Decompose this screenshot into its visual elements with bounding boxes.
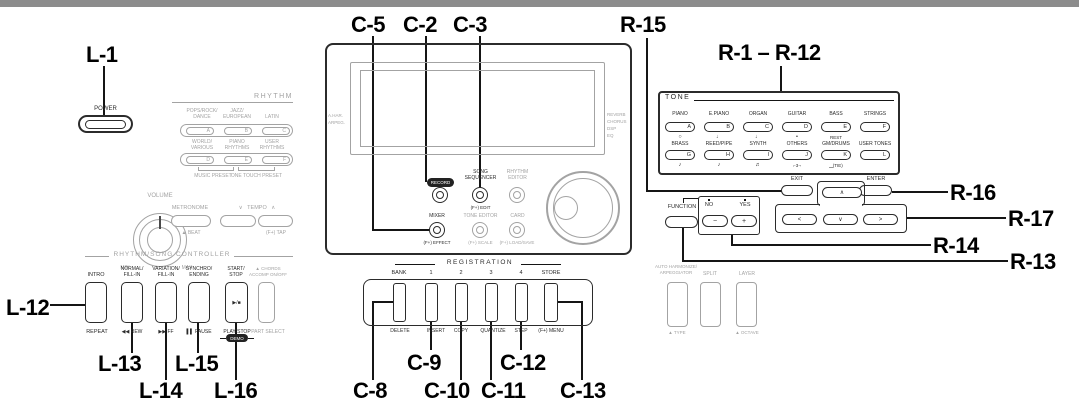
- note-tie-icon: ‿(TIE): [821, 163, 851, 169]
- reg1-button[interactable]: [425, 283, 438, 322]
- demo-label: DEMO: [230, 336, 244, 341]
- card-sub: (F+) LOAD/SAVE: [492, 240, 542, 246]
- tone-button-a[interactable]: A: [665, 122, 695, 132]
- power-button[interactable]: [78, 115, 133, 133]
- tone-key-a: A: [687, 124, 691, 130]
- organ-label: ORGAN: [739, 111, 777, 117]
- callout-l12: L-12: [6, 295, 49, 321]
- bass-label: BASS: [817, 111, 855, 117]
- delete-label: DELETE: [386, 328, 414, 334]
- note-whole-icon: ○: [670, 134, 690, 141]
- cursor-up-button[interactable]: ∧: [822, 187, 862, 198]
- normal-fill-in-button[interactable]: [121, 282, 143, 323]
- function-button[interactable]: [665, 216, 698, 228]
- brass-label: BRASS: [660, 141, 700, 147]
- insert-label: INSERT: [422, 328, 450, 334]
- music-preset-bracket-r: [233, 167, 234, 171]
- chevron-up-icon: ∧: [840, 189, 844, 196]
- rhythm-key-c: C: [282, 128, 286, 134]
- callout-r14: R-14: [933, 233, 979, 259]
- callout-c3: C-3: [453, 12, 487, 38]
- tone-key-l: L: [883, 152, 886, 158]
- volume-knob-cap: [147, 227, 173, 253]
- card-cap: [513, 226, 521, 234]
- tone-button-e[interactable]: E: [821, 122, 851, 132]
- tone-key-d: D: [804, 124, 808, 130]
- copy-label: COPY: [447, 328, 475, 334]
- mixer-sub: (F+) EFFECT: [415, 240, 459, 246]
- chevron-left-icon: <: [798, 217, 802, 223]
- guitar-label: GUITAR: [778, 111, 816, 117]
- yes-dot: [744, 199, 746, 201]
- tempo-up-button[interactable]: [258, 215, 293, 227]
- rhythm-button-f[interactable]: F: [262, 156, 290, 164]
- card-label: CARD: [495, 213, 540, 219]
- onetouch-bracket-r: [274, 167, 275, 171]
- callout-c13: C-13: [560, 378, 606, 404]
- metronome-beat-label: ▲ BEAT: [171, 230, 211, 236]
- tone-button-k[interactable]: K: [821, 150, 851, 160]
- plus-button[interactable]: +: [731, 215, 757, 227]
- tone-key-k: K: [843, 152, 847, 158]
- leader-l15: [197, 322, 199, 353]
- rhythm-button-d[interactable]: D: [186, 156, 214, 164]
- rhythm-key-e: E: [245, 157, 248, 163]
- callout-r15: R-15: [620, 12, 666, 38]
- onetouch-bracket-h: [238, 170, 275, 171]
- display-right-indicators: REVERB CHORUS DSP EQ: [607, 112, 633, 140]
- rhythm-button-b[interactable]: B: [224, 127, 252, 135]
- panel-diagram: L-1 L-12 L-13 L-14 L-15 L-16 C-5 C-2 C-3…: [0, 0, 1079, 409]
- tone-key-f: F: [883, 124, 886, 130]
- store-button[interactable]: [544, 283, 558, 322]
- bank-button[interactable]: [393, 283, 406, 322]
- tone-button-l[interactable]: L: [860, 150, 890, 160]
- octave-label: ▲ OCTAVE: [728, 330, 766, 336]
- registration-rule-right: [521, 264, 561, 265]
- user-tones-label: USER TONES: [855, 141, 895, 147]
- accomp-on-off-label: ▲ CHORDS ACCOMP ON/OFF: [242, 266, 294, 277]
- record-button-cap: [436, 191, 444, 199]
- synchro-ending-button[interactable]: [188, 282, 210, 323]
- no-label: NO: [700, 202, 718, 209]
- cursor-left-button[interactable]: <: [782, 214, 817, 225]
- power-label: POWER: [78, 106, 133, 114]
- callout-c9: C-9: [407, 350, 441, 376]
- rhythm-key-f: F: [283, 157, 286, 163]
- note-quarter-icon: ♩: [748, 134, 768, 141]
- piano-label: PIANO: [661, 111, 699, 117]
- menu-label: (F+) MENU: [534, 328, 568, 334]
- minus-button[interactable]: −: [702, 215, 728, 227]
- auto-harmonize-button[interactable]: [667, 282, 688, 327]
- volume-label: VOLUME: [132, 193, 188, 201]
- gm-drums-label: GM/DRUMS: [816, 141, 856, 147]
- reg4-label: 4: [514, 270, 528, 277]
- cursor-right-button[interactable]: >: [863, 214, 898, 225]
- tone-header: TONE: [665, 94, 701, 103]
- tone-key-e: E: [843, 124, 847, 130]
- reg3-label: 3: [484, 270, 498, 277]
- display-left-indicators: A.HAR. ARPEG.: [328, 112, 350, 126]
- rhythm-button-a[interactable]: A: [186, 127, 214, 135]
- function-label: FUNCTION: [663, 204, 701, 211]
- demo-line-right: [248, 338, 254, 339]
- rest-label: REST: [826, 135, 846, 141]
- leader-l12: [50, 304, 86, 306]
- tone-key-c: C: [765, 124, 769, 130]
- one-touch-preset-label: ONE TOUCH PRESET: [229, 173, 284, 179]
- accomp-on-off-button[interactable]: [258, 282, 275, 323]
- epiano-label: E.PIANO: [700, 111, 738, 117]
- callout-r1-r12: R-1 – R-12: [718, 40, 821, 66]
- registration-header: REGISTRATION: [437, 259, 523, 267]
- keyboard-top-edge: [0, 0, 1079, 7]
- rhythm-key-b: B: [245, 128, 248, 134]
- chevron-down-icon: ∨: [838, 216, 842, 223]
- callout-l1: L-1: [86, 42, 118, 68]
- callout-l13: L-13: [98, 351, 141, 377]
- power-button-inner: [85, 120, 126, 129]
- tempo-tap-label: (F+) TAP: [255, 230, 297, 236]
- record-button-label: RECORD: [427, 178, 454, 187]
- rhythm-header-rule: [172, 102, 293, 103]
- mixer-label: MIXER: [415, 213, 459, 219]
- callout-c8: C-8: [353, 378, 387, 404]
- variation-fill-in-button[interactable]: [155, 282, 177, 323]
- play-stop-icon: ▶/■: [232, 300, 240, 306]
- enter-label: ENTER: [860, 176, 892, 183]
- start-stop-button[interactable]: ▶/■: [225, 282, 248, 323]
- rhythm-header: RHYTHM: [233, 93, 293, 102]
- rhythm-button-c[interactable]: C: [262, 127, 290, 135]
- intro-button[interactable]: [85, 282, 107, 323]
- rhythm-key-d: D: [206, 157, 210, 163]
- music-preset-bracket-h: [198, 170, 234, 171]
- split-label: SPLIT: [698, 271, 722, 277]
- metronome-button[interactable]: [171, 215, 211, 227]
- note-dot-icon: •: [787, 134, 807, 141]
- callout-c12: C-12: [500, 350, 546, 376]
- step-label: STEP: [507, 328, 535, 334]
- reg3-button[interactable]: [485, 283, 498, 322]
- data-dial-dimple: [554, 196, 578, 220]
- rhythm-f-label: USER RHYTHMS: [247, 139, 297, 152]
- metronome-label: METRONOME: [162, 205, 218, 212]
- rhythm-button-e[interactable]: E: [224, 156, 252, 164]
- note-sixteenth-icon: ♬: [748, 162, 768, 169]
- display-screen: [360, 70, 595, 147]
- strings-label: STRINGS: [856, 111, 894, 117]
- callout-c5: C-5: [351, 12, 385, 38]
- reed-pipe-label: REED/PIPE: [699, 141, 739, 147]
- synth-label: SYNTH: [738, 141, 778, 147]
- reg1-label: 1: [424, 270, 438, 277]
- leader-c9: [430, 322, 432, 350]
- type-label: ▲ TYPE: [662, 330, 692, 336]
- yes-label: YES: [736, 202, 754, 209]
- callout-r16: R-16: [950, 180, 996, 206]
- callout-l15: L-15: [175, 351, 218, 377]
- exit-button[interactable]: [781, 185, 813, 196]
- tone-key-j: J: [805, 152, 808, 158]
- tone-header-rule: [694, 100, 894, 101]
- tone-button-i[interactable]: I: [743, 150, 773, 160]
- minus-icon: −: [713, 218, 717, 225]
- registration-rule-left: [395, 264, 435, 265]
- tempo-header: ∨ TEMPO ∧: [219, 205, 295, 212]
- reg2-button[interactable]: [455, 283, 468, 322]
- others-label: OTHERS: [777, 141, 817, 147]
- part-select-label: PART SELECT: [240, 329, 296, 335]
- tone-button-h[interactable]: H: [704, 150, 734, 160]
- mixer-cap: [433, 226, 441, 234]
- volume-pointer: [159, 216, 161, 229]
- callout-l16: L-16: [214, 378, 257, 404]
- cursor-down-button[interactable]: ∨: [823, 214, 858, 225]
- leader-r14-h: [731, 244, 931, 246]
- bank-label: BANK: [385, 270, 413, 277]
- rhythm-key-a: A: [207, 128, 210, 134]
- note-eighth2-icon: ♪: [709, 162, 729, 169]
- layer-button[interactable]: [736, 282, 757, 327]
- tone-button-j[interactable]: J: [782, 150, 812, 160]
- leader-r17: [907, 217, 1006, 219]
- controller-rule-right: [234, 256, 293, 257]
- tone-key-g: G: [687, 152, 691, 158]
- plus-icon: +: [742, 218, 746, 225]
- reg4-button[interactable]: [515, 283, 528, 322]
- tone-key-b: B: [726, 124, 730, 130]
- callout-c2: C-2: [403, 12, 437, 38]
- quantize-label: QUANTIZE: [477, 328, 509, 334]
- leader-r13-v: [682, 228, 684, 262]
- store-label: STORE: [537, 270, 565, 277]
- song-sequencer-cap: [476, 191, 484, 199]
- leader-r16: [892, 191, 948, 193]
- song-sequencer-sub: (F+) EDIT: [458, 205, 503, 211]
- chevron-right-icon: >: [879, 217, 883, 223]
- callout-c10: C-10: [424, 378, 470, 404]
- tone-button-b[interactable]: B: [704, 122, 734, 132]
- auto-harmonize-label: AUTO HARMONIZE/ ARPEGGIATOR: [648, 264, 704, 275]
- note-half-icon: ♩: [709, 134, 729, 141]
- leader-l13: [131, 322, 133, 353]
- split-button[interactable]: [700, 282, 721, 327]
- tone-editor-cap: [476, 226, 484, 234]
- function-bracket-h: [683, 198, 699, 199]
- rhythm-editor-cap: [513, 191, 521, 199]
- leader-r15-v: [646, 38, 648, 192]
- tone-button-f[interactable]: F: [860, 122, 890, 132]
- function-bracket-l: [683, 198, 684, 203]
- leader-r15-h: [646, 190, 782, 192]
- tone-key-i: I: [767, 152, 769, 158]
- callout-l14: L-14: [139, 378, 182, 404]
- tone-button-c[interactable]: C: [743, 122, 773, 132]
- rhythm-editor-label: RHYTHM EDITOR: [495, 169, 540, 182]
- controller-rule-left: [85, 256, 109, 257]
- leader-r13-h: [682, 260, 1008, 262]
- callout-c11: C-11: [481, 378, 525, 404]
- rhythm-c-label: LATIN: [247, 114, 297, 120]
- cursor-pad-join: [820, 202, 862, 207]
- record-label: RECORD: [431, 180, 451, 185]
- tone-group-box: [658, 91, 900, 175]
- reg2-label: 2: [454, 270, 468, 277]
- exit-label: EXIT: [782, 176, 812, 183]
- tempo-down-button[interactable]: [220, 215, 256, 227]
- callout-r13: R-13: [1010, 249, 1056, 275]
- controller-header: RHYTHM/SONG CONTROLLER: [110, 251, 234, 259]
- leader-c12: [520, 322, 522, 350]
- no-dot: [708, 199, 710, 201]
- note-triplet-icon: ⌐3¬: [787, 163, 807, 169]
- note-eighth-icon: ♪: [670, 162, 690, 169]
- layer-label: LAYER: [734, 271, 760, 277]
- tone-button-g[interactable]: G: [665, 150, 695, 160]
- callout-r17: R-17: [1008, 206, 1054, 232]
- tone-button-d[interactable]: D: [782, 122, 812, 132]
- leader-r1-r12: [780, 66, 782, 91]
- tone-key-h: H: [726, 152, 730, 158]
